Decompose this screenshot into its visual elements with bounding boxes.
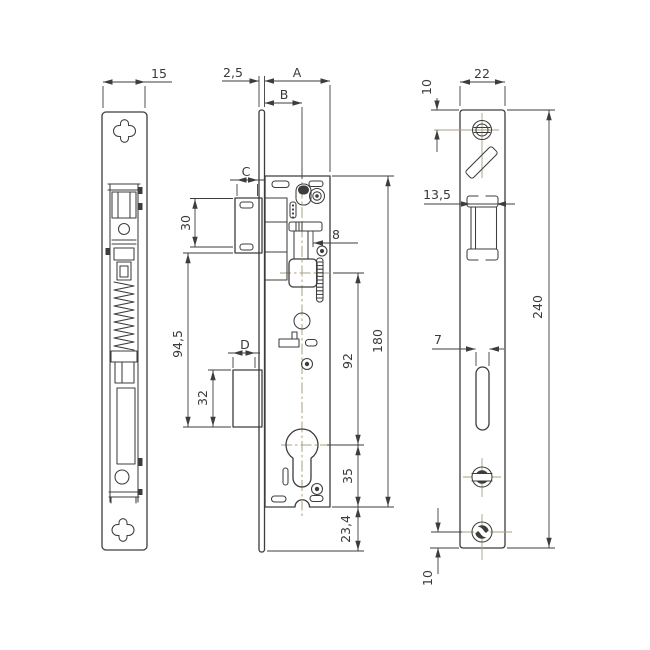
dim-label-22: 22 (474, 66, 490, 81)
stop-bar (279, 339, 299, 347)
faceplate-edge (259, 110, 265, 552)
faceplate-view: 13,5 7 (419, 66, 555, 586)
dim-slot-width-7: 7 (432, 332, 504, 366)
dim-label-92: 92 (340, 353, 355, 369)
dim-label-a: A (293, 65, 302, 80)
pocket-slot (240, 244, 253, 250)
dim-faceplate-thickness-2-5: 2,5 (222, 65, 274, 107)
dim-case-to-plate-bottom-23-4: 23,4 (267, 507, 364, 551)
side-view: 15 (102, 66, 172, 550)
side-rivet (106, 248, 110, 255)
dim-lower-pocket-d: D (228, 337, 260, 368)
side-cylinder-hole (115, 470, 129, 484)
dim-plate-height-240: 240 (507, 110, 555, 548)
bottom-slot (310, 496, 323, 502)
small-slot (306, 340, 318, 347)
dim-label-10-top: 10 (419, 79, 434, 95)
side-hole (119, 224, 130, 235)
small-slot (283, 468, 288, 485)
dim-label-13-5: 13,5 (423, 187, 451, 202)
latch-housing (265, 198, 287, 252)
latch-pocket-box (235, 198, 262, 253)
lock-case-outline (265, 176, 330, 507)
front-view: 2,5 A B C (170, 65, 394, 552)
dim-label-94-5: 94,5 (170, 330, 185, 358)
top-slot (272, 181, 289, 188)
mounting-hole-bottom (112, 519, 134, 542)
dim-backset-a: A (265, 65, 331, 172)
dim-label-23-4: 23,4 (338, 515, 353, 543)
spring (114, 282, 134, 350)
dim-label-10-bottom: 10 (420, 570, 435, 586)
latch-bolt-slanted (465, 146, 498, 179)
dim-side-width-15: 15 (103, 66, 172, 108)
side-plate-outline (102, 112, 147, 550)
lock-technical-drawing: 15 (0, 0, 650, 650)
dim-lower-pocket-height-32: 32 (195, 370, 231, 427)
dim-label-240: 240 (530, 295, 545, 319)
dim-cylinder-to-bottom-35: 35 (340, 445, 358, 507)
dim-label-35: 35 (340, 468, 355, 484)
slide-bar (289, 222, 322, 231)
pocket-slot (240, 202, 253, 208)
dim-label-2-5: 2,5 (223, 65, 243, 80)
dim-label-8: 8 (332, 227, 340, 242)
dim-label-c: C (242, 164, 251, 179)
dim-backset-b: B (265, 87, 303, 179)
side-mechanism (106, 184, 143, 503)
deadbolt-slot (476, 367, 489, 430)
dim-label-30: 30 (178, 215, 193, 231)
dim-case-height-180: 180 (332, 176, 394, 507)
dim-bottom-screw-offset-10: 10 (420, 508, 462, 586)
mounting-hole-top (114, 120, 136, 143)
dim-label-15: 15 (151, 66, 167, 81)
dim-label-d: D (240, 337, 250, 352)
dim-spindle-to-cylinder-92: 92 (327, 273, 364, 445)
lower-pocket-box (233, 370, 262, 427)
dim-top-screw-offset-10: 10 (419, 79, 459, 152)
side-rivet (139, 203, 143, 210)
technical-drawing-page: 15 (0, 0, 650, 650)
dim-latch-pocket-height-30: 30 (178, 199, 233, 248)
top-slot (309, 181, 323, 187)
latch-bevel (298, 186, 309, 195)
hub-housing (265, 252, 287, 280)
dim-label-180: 180 (370, 329, 385, 353)
dim-plate-width-22: 22 (460, 66, 505, 106)
dim-label-7: 7 (434, 332, 442, 347)
bottom-slot (272, 496, 287, 502)
dim-label-b: B (280, 87, 289, 102)
side-rivet (139, 187, 143, 194)
dim-latch-offset-8: 8 (313, 227, 358, 247)
dim-label-32: 32 (195, 390, 210, 406)
case-details (265, 181, 327, 502)
side-rivet (139, 458, 143, 466)
